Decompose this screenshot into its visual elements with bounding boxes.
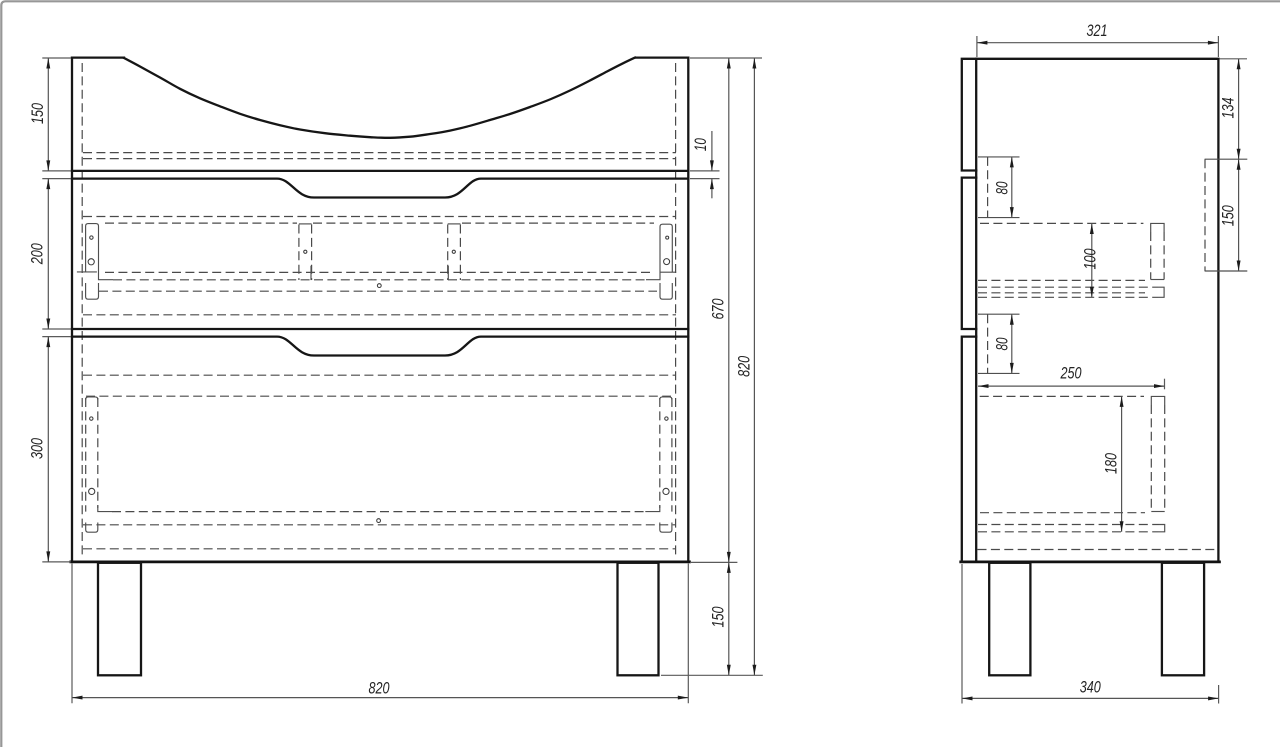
svg-text:300: 300	[29, 437, 47, 459]
svg-text:340: 340	[1080, 679, 1102, 697]
svg-text:670: 670	[710, 298, 728, 320]
svg-text:150: 150	[29, 102, 47, 124]
svg-text:134: 134	[1220, 98, 1238, 119]
svg-text:150: 150	[710, 606, 728, 628]
svg-text:150: 150	[1220, 205, 1238, 227]
svg-text:250: 250	[1060, 364, 1082, 382]
svg-text:200: 200	[29, 243, 47, 265]
svg-text:80: 80	[994, 337, 1012, 351]
svg-text:80: 80	[994, 181, 1012, 195]
svg-text:321: 321	[1087, 22, 1108, 40]
svg-text:820: 820	[369, 680, 391, 698]
svg-text:100: 100	[1082, 248, 1100, 270]
svg-text:10: 10	[692, 138, 710, 152]
svg-text:820: 820	[736, 355, 754, 377]
svg-text:180: 180	[1103, 452, 1121, 474]
